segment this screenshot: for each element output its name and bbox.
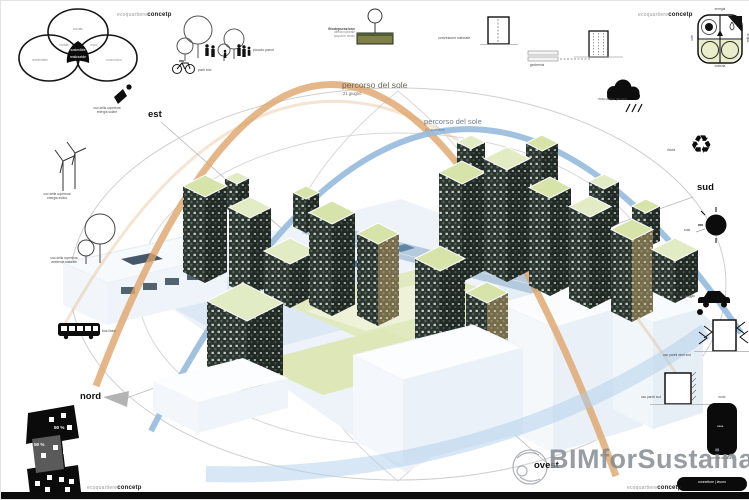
compass-sud: sud <box>697 183 714 194</box>
brand-top-left: ecoquartiereconcetp <box>117 12 172 19</box>
parking-caption: parcheggio <box>659 295 695 299</box>
brand-top-right: ecoquartiereconcetp <box>638 12 693 19</box>
rain-cloud-icon <box>607 80 642 113</box>
venn-label-viable: realizzabile <box>70 56 86 60</box>
bus-caption: bus linea <box>102 330 116 334</box>
grid-label-acqua: acqua <box>746 33 749 42</box>
venn-label-social: sociale <box>73 28 83 32</box>
compass-est: est <box>148 110 162 121</box>
solar-panel-icon <box>114 84 132 104</box>
rain-caption: riuso acqua piovana <box>575 98 627 102</box>
siteplan-pct-b: 50 % <box>54 425 64 430</box>
venn-label-equitable: equo <box>90 44 97 48</box>
sun-path-december-date: 21 dicembre <box>425 128 445 132</box>
concept-scene <box>1 1 749 499</box>
site-plan-icon <box>26 405 81 494</box>
recycle-icon: ♻ <box>690 133 712 158</box>
venn-label-sustainable: sostenibile <box>70 49 85 53</box>
solar-caption: uso della copertura energia solare <box>85 107 129 114</box>
park-trees-icon <box>177 16 244 61</box>
venn-diagram <box>19 9 137 81</box>
heatpump-inner-label: casa <box>717 425 723 428</box>
sun-path-june-date: 21 giugno <box>343 92 361 97</box>
geothermal-caption: geotermia <box>530 64 544 68</box>
venn-label-livable: vivibile <box>59 44 69 48</box>
nature-caption: uso della copertura ambiente naturale <box>39 257 89 264</box>
sun-caption: sole <box>684 229 690 233</box>
sun-path-december-title: percorso del sole <box>424 118 482 127</box>
wall-south-caption: uso pareti sud <box>615 396 661 400</box>
brand-bottom-right: ecoquartiereconcetp <box>627 485 682 492</box>
grid-label-materia: materia <box>715 65 726 69</box>
wind-caption: uso della copertura energia eolica <box>33 193 81 200</box>
bike-caption: park bici <box>198 68 211 72</box>
venn-label-environment: ambientale <box>32 59 48 63</box>
recycle-caption: ricicla <box>667 149 675 153</box>
park-caption: piccolo parco <box>253 48 274 52</box>
phytodepuration-icon <box>357 9 393 44</box>
watermark-text: BIMforSustainability <box>549 444 749 475</box>
convection-caption: convezione naturale <box>438 36 470 40</box>
convection-door-icon <box>480 17 518 45</box>
sun-icon <box>696 207 727 243</box>
grid-label-sole: sole <box>691 35 695 41</box>
eco-district-concept-board: ecoquartiereconcetp ecoquartiereconcetp … <box>0 0 749 500</box>
north-arrow <box>103 391 129 407</box>
concept-grid-icon <box>698 15 742 63</box>
wind-turbine-icon <box>55 142 86 191</box>
connector-pill-label: connettore | lavoro <box>677 481 747 485</box>
siteplan-pct-a: 50 % <box>34 442 44 447</box>
phyto-caption: fitodepurazione difesa naturale acqua in… <box>313 27 355 38</box>
bicycle-icon <box>173 61 195 74</box>
heatpump-top-label: moto <box>718 396 725 400</box>
compass-nord: nord <box>80 392 101 403</box>
sun-path-june-title: percorso del sole <box>342 81 407 91</box>
venn-label-economic: economico <box>106 59 121 63</box>
grid-label-energia: energia <box>715 8 726 12</box>
brand-bottom-left: ecoquartiereconcetp <box>87 485 142 492</box>
geothermal-icon <box>528 31 623 61</box>
wall-wind-caption: uso pareti venti sud <box>642 354 712 358</box>
bus-icon <box>58 323 100 339</box>
